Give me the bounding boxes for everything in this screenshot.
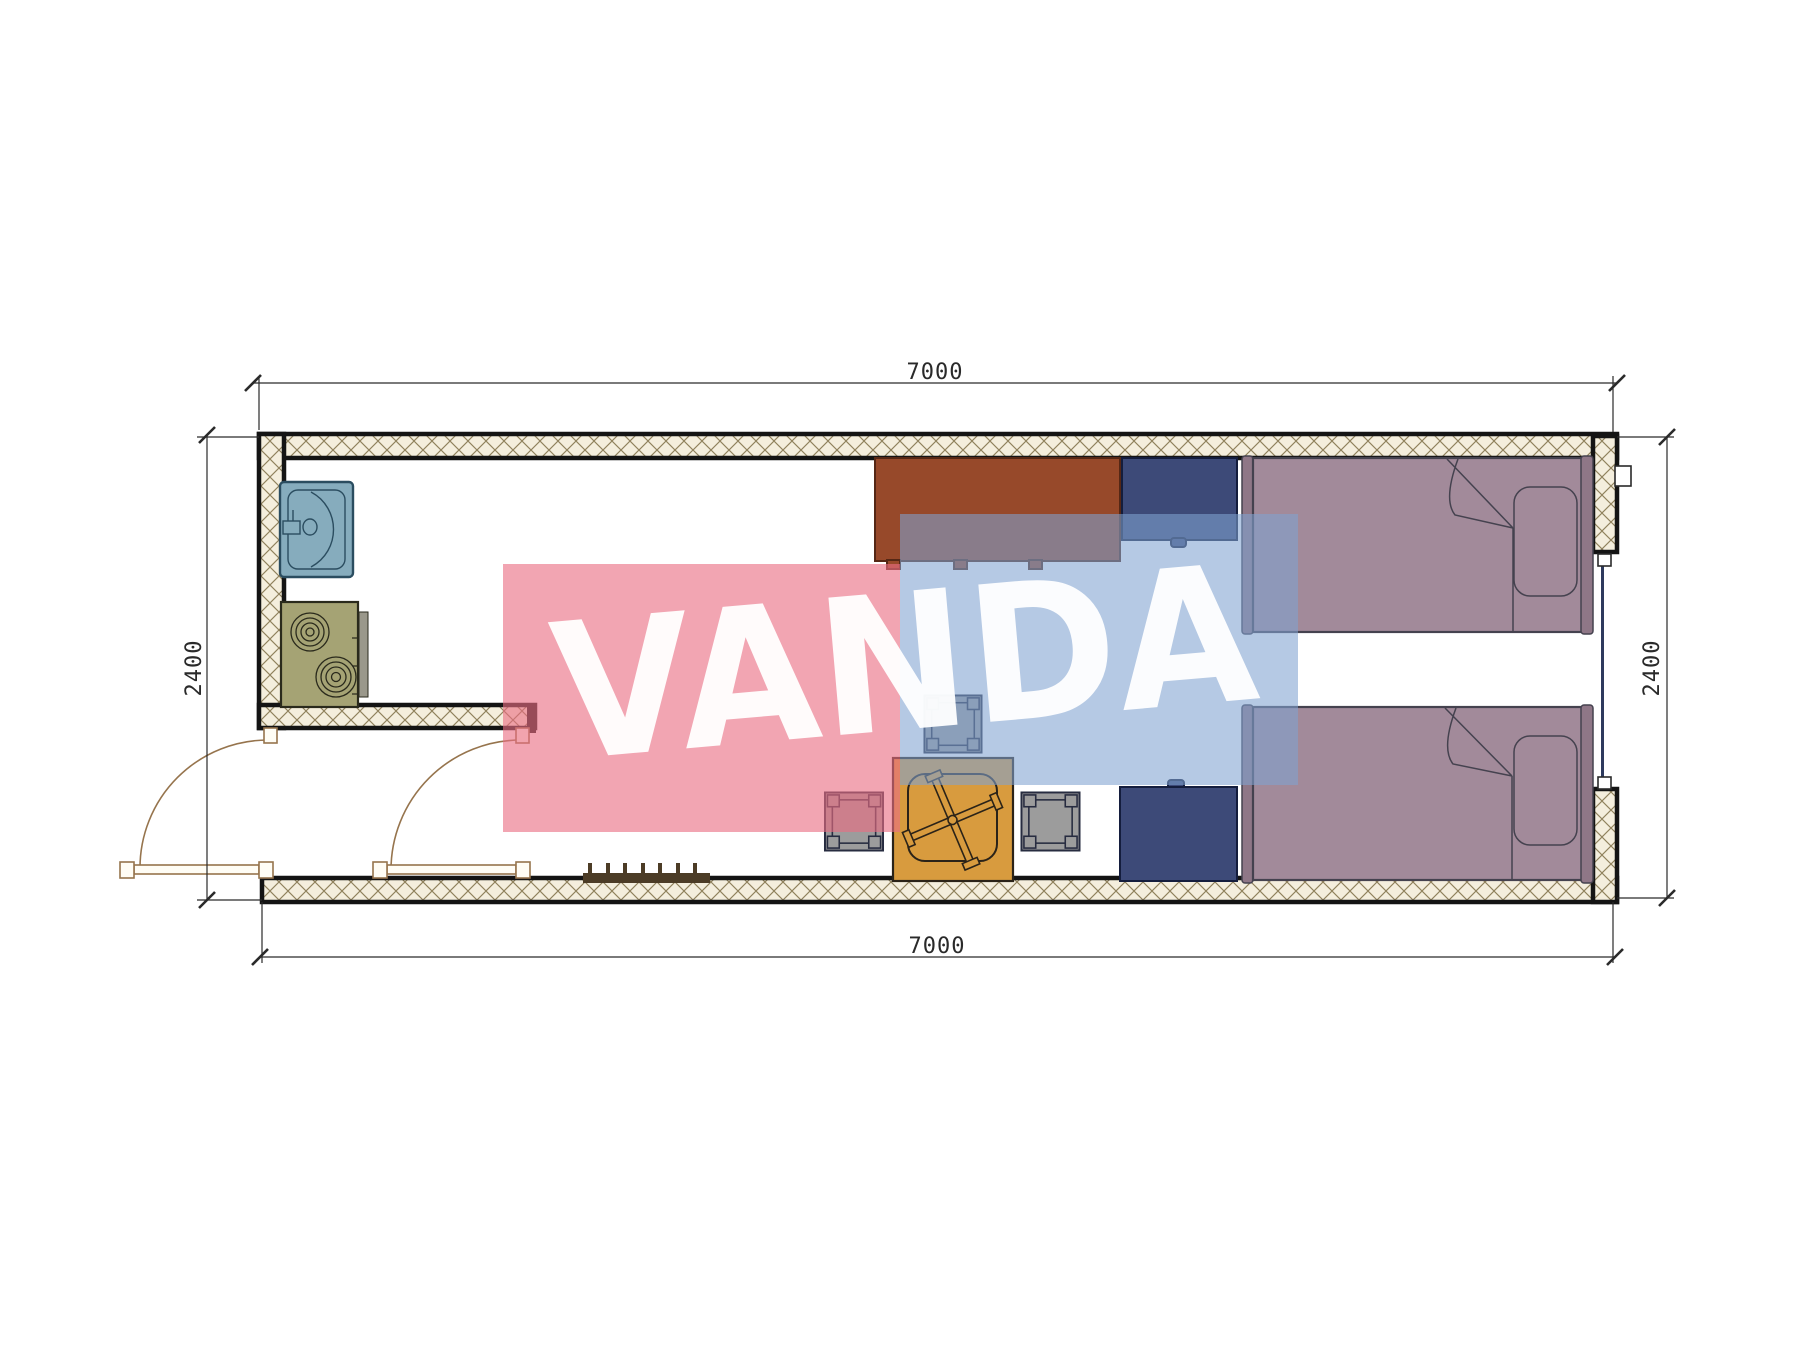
floor-plan-canvas: 7000 7000 2400 2400 VANDA xyxy=(0,0,1800,1350)
radiator xyxy=(583,863,710,883)
sink-faucet xyxy=(283,521,300,534)
dim-label-right: 2400 xyxy=(1640,640,1665,697)
wall-right-lower xyxy=(1593,789,1617,902)
wall-right-upper xyxy=(1593,436,1617,552)
sink-knob xyxy=(303,519,317,535)
bed-top-footboard xyxy=(1581,456,1593,634)
wardrobe-bottom-body xyxy=(1120,787,1237,881)
stove-body xyxy=(281,602,358,707)
dim-label-bottom: 7000 xyxy=(909,934,966,959)
exterior-vent xyxy=(1615,466,1631,486)
wall-top xyxy=(259,434,1617,458)
bed-bottom-footboard xyxy=(1581,705,1593,883)
dim-label-top: 7000 xyxy=(907,360,964,385)
sink xyxy=(280,482,353,577)
window-sill-bottom xyxy=(1598,777,1611,789)
stove-rail xyxy=(359,612,368,697)
door-right-swing-arc xyxy=(391,740,521,870)
stove xyxy=(281,602,368,707)
bed-bottom-mattress xyxy=(1253,707,1583,880)
window-glass-line xyxy=(1601,566,1604,777)
stool-right xyxy=(1021,792,1079,850)
window-sill-top xyxy=(1598,554,1611,566)
bed-top-mattress xyxy=(1253,458,1583,632)
door-right-leaf-cap-outer xyxy=(373,862,387,878)
floor-plan-page: 7000 7000 2400 2400 VANDA xyxy=(0,0,1800,1350)
door-left-leaf xyxy=(134,865,259,874)
wall-kitchen-partition xyxy=(259,705,535,728)
door-left-leaf-cap-outer xyxy=(120,862,134,878)
dim-label-left: 2400 xyxy=(182,640,207,697)
radiator-bar xyxy=(583,873,710,883)
wardrobe-bottom xyxy=(1120,780,1237,881)
door-left-leaf-cap-inner xyxy=(259,862,273,878)
door-right-leaf xyxy=(387,865,516,874)
watermark: VANDA xyxy=(503,514,1298,832)
door-left-jamb xyxy=(264,728,277,743)
doors xyxy=(120,728,530,878)
door-right-leaf-cap-inner xyxy=(516,862,530,878)
door-left-swing-arc xyxy=(140,740,268,868)
